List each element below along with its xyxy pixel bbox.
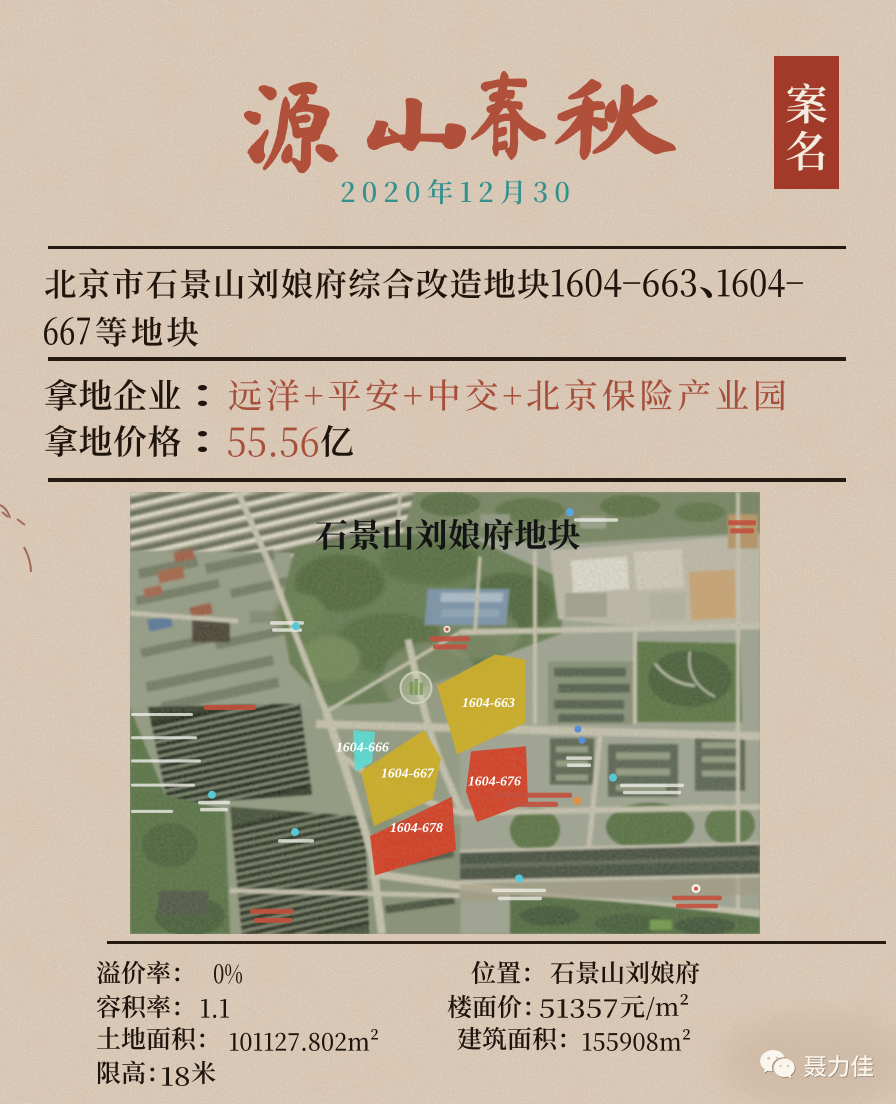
svg-text:1604-678: 1604-678 [390,820,443,835]
svg-text:1604-666: 1604-666 [336,739,389,754]
svg-text:1604-667: 1604-667 [381,766,435,781]
svg-text:1604-676: 1604-676 [468,774,521,789]
svg-text:1604-663: 1604-663 [462,695,515,710]
